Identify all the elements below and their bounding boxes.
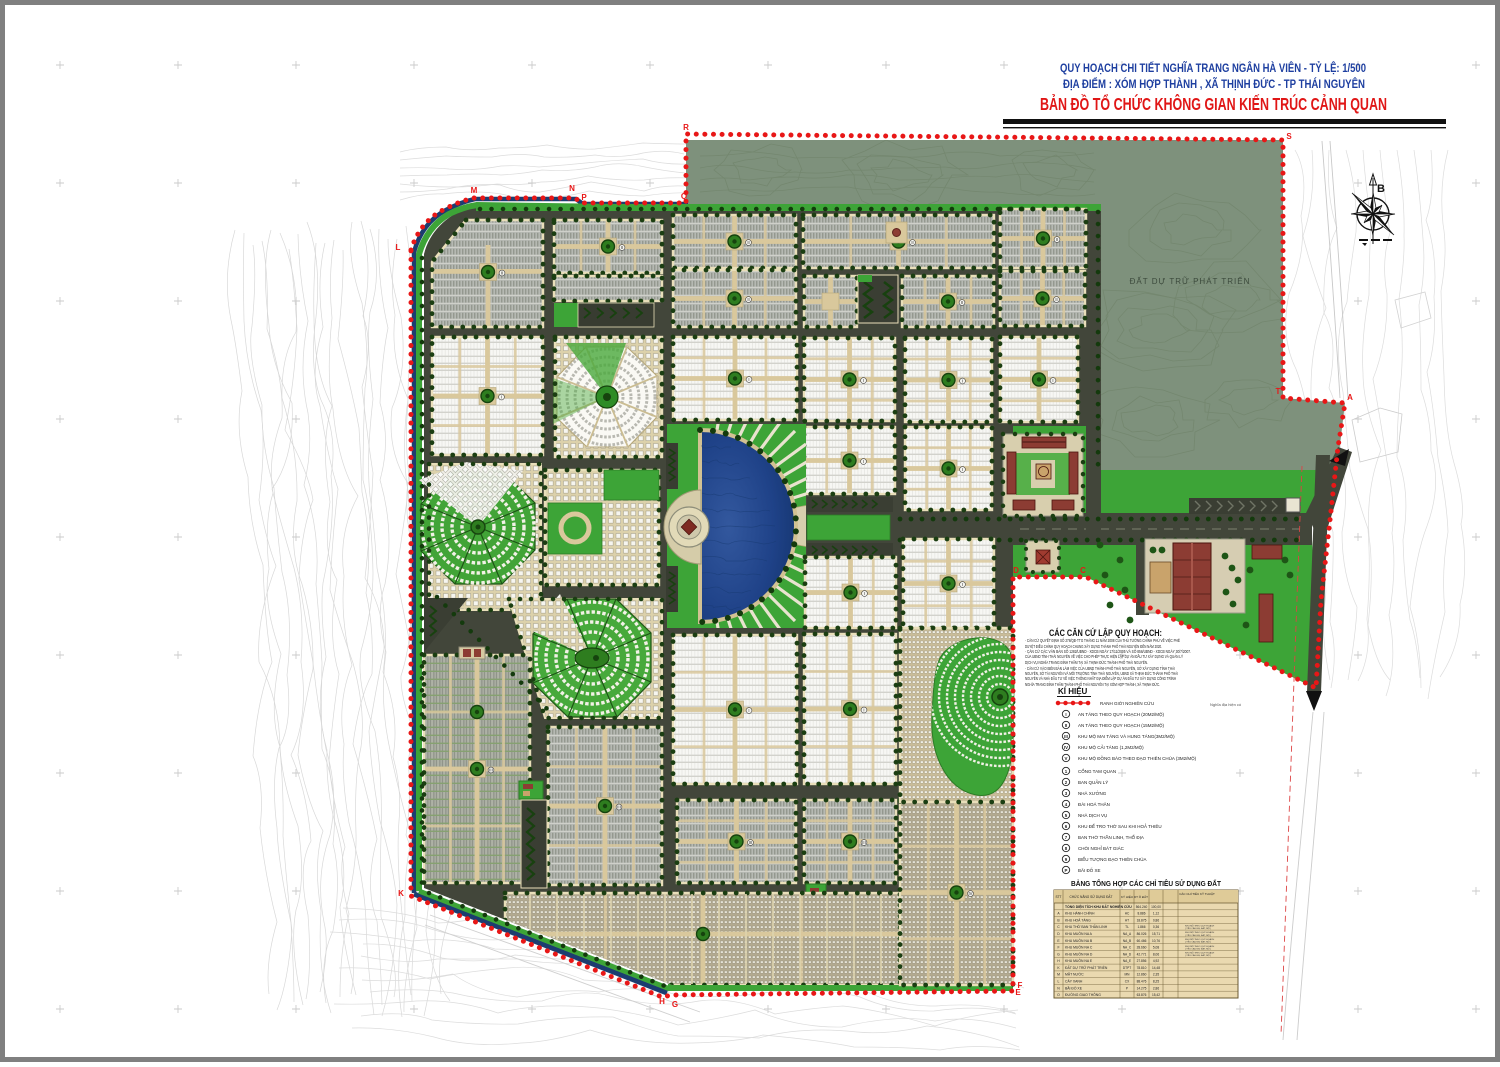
svg-text:CỦA UBND TỈNH THÁI NGUYÊN VỀ V: CỦA UBND TỈNH THÁI NGUYÊN VỀ VIỆC CHO PH… bbox=[1025, 654, 1183, 659]
svg-text:O: O bbox=[1057, 993, 1060, 997]
svg-text:NA_D: NA_D bbox=[1123, 952, 1132, 956]
svg-text:5,08: 5,08 bbox=[1153, 946, 1159, 950]
svg-text:MẶT NƯỚC: MẶT NƯỚC bbox=[1065, 972, 1084, 977]
svg-text:I: I bbox=[863, 459, 864, 464]
svg-text:( YÊU CẦU ĐB, ĐẤT, MỘ ): ( YÊU CẦU ĐB, ĐẤT, MỘ ) bbox=[1185, 947, 1211, 950]
svg-text:KHU MUÔN NA D: KHU MUÔN NA D bbox=[1065, 951, 1093, 956]
svg-text:KHU ĐỂ TRO THỜ SAU KHI HOẢ THI: KHU ĐỂ TRO THỜ SAU KHI HOẢ THIÊU bbox=[1078, 822, 1162, 829]
svg-text:MN: MN bbox=[1125, 973, 1131, 977]
svg-text:0,86: 0,86 bbox=[1153, 919, 1159, 923]
svg-text:I: I bbox=[1065, 712, 1066, 717]
svg-text:( YÊU CẦU ĐB, ĐẤT, MỘ ): ( YÊU CẦU ĐB, ĐẤT, MỘ ) bbox=[1185, 954, 1211, 957]
svg-text:- CĂN CỨ QUYẾT ĐỊNH SỐ 278/QĐ-: - CĂN CỨ QUYẾT ĐỊNH SỐ 278/QĐ-TTG THÁNG … bbox=[1025, 638, 1180, 643]
svg-text:2,86: 2,86 bbox=[1153, 986, 1159, 990]
svg-text:I: I bbox=[1052, 378, 1053, 383]
svg-text:CÁC CHỈ TIÊU KỸ THUẬT: CÁC CHỈ TIÊU KỸ THUẬT bbox=[1179, 891, 1215, 896]
svg-text:KÍ HIỆU: KÍ HIỆU bbox=[1058, 687, 1088, 696]
svg-text:( YÊU CẦU ĐB, ĐẤT, MỘ ): ( YÊU CẦU ĐB, ĐẤT, MỘ ) bbox=[1185, 941, 1211, 944]
svg-text:88.476: 88.476 bbox=[1137, 980, 1147, 984]
svg-text:60.466: 60.466 bbox=[1137, 939, 1147, 943]
svg-text:P: P bbox=[1126, 986, 1128, 990]
svg-text:B: B bbox=[1377, 183, 1385, 195]
svg-text:BAN THỜ THẦN LINH, THỔ ĐỊA: BAN THỜ THẦN LINH, THỔ ĐỊA bbox=[1078, 834, 1144, 840]
svg-text:NA_C: NA_C bbox=[1123, 946, 1132, 950]
svg-text:DT Ô ĐẤT: DT Ô ĐẤT bbox=[1134, 894, 1148, 899]
svg-text:II: II bbox=[501, 271, 503, 276]
svg-text:NGHĨA TRANG ĐỈNH THẮM THÀNH PH: NGHĨA TRANG ĐỈNH THẮM THÀNH PHỐ THÁI NGU… bbox=[1025, 682, 1160, 687]
svg-text:Q: Q bbox=[681, 192, 687, 201]
svg-text:II: II bbox=[961, 300, 963, 305]
svg-text:42.771: 42.771 bbox=[1137, 952, 1147, 956]
svg-text:L: L bbox=[396, 243, 401, 252]
svg-text:F: F bbox=[1057, 946, 1059, 950]
svg-text:0,36: 0,36 bbox=[1153, 925, 1159, 929]
svg-text:NA_B: NA_B bbox=[1123, 939, 1131, 943]
svg-text:KHU MỘ THEO QUY HOẠCH: KHU MỘ THEO QUY HOẠCH bbox=[1185, 931, 1215, 934]
svg-text:KHU MUÔN NA A: KHU MUÔN NA A bbox=[1065, 931, 1093, 936]
svg-text:G: G bbox=[1057, 952, 1060, 956]
svg-text:A: A bbox=[1347, 393, 1353, 402]
svg-text:DỊCH VỤ NGHĨA TRANG ĐỈNH THẮM: DỊCH VỤ NGHĨA TRANG ĐỈNH THẮM TẠI XÃ THỊ… bbox=[1025, 660, 1148, 665]
svg-text:C: C bbox=[1080, 566, 1086, 575]
svg-text:III: III bbox=[1064, 734, 1068, 739]
svg-text:I: I bbox=[962, 379, 963, 384]
svg-text:10,76: 10,76 bbox=[1152, 939, 1160, 943]
svg-text:KHU THỜ BAN THẦN LINH: KHU THỜ BAN THẦN LINH bbox=[1065, 924, 1108, 929]
svg-text:CỔNG TAM QUAN: CỔNG TAM QUAN bbox=[1078, 768, 1116, 774]
svg-text:( YÊU CẦU ĐB, ĐẤT, MỘ ): ( YÊU CẦU ĐB, ĐẤT, MỘ ) bbox=[1185, 927, 1211, 930]
svg-text:HT: HT bbox=[1125, 919, 1129, 923]
svg-text:M: M bbox=[471, 186, 478, 195]
svg-text:I: I bbox=[501, 395, 502, 400]
svg-text:KHU HÀNH CHÍNH: KHU HÀNH CHÍNH bbox=[1065, 912, 1095, 916]
svg-text:CÂY XANH: CÂY XANH bbox=[1065, 980, 1083, 984]
svg-text:ĐỊA ĐIỂM : XÓM HỢP THÀNH , XÃ: ĐỊA ĐIỂM : XÓM HỢP THÀNH , XÃ THỊNH ĐỨC … bbox=[1063, 78, 1365, 91]
svg-text:1.866: 1.866 bbox=[1138, 925, 1146, 929]
svg-text:D: D bbox=[1013, 566, 1019, 575]
svg-text:M: M bbox=[1057, 973, 1060, 977]
svg-text:N: N bbox=[569, 184, 575, 193]
svg-text:KHU MỘ CẢI TÁNG (1,2M2/MỘ): KHU MỘ CẢI TÁNG (1,2M2/MỘ) bbox=[1078, 744, 1144, 750]
svg-text:QUY HOẠCH CHI TIẾT NGHĨA TRANG: QUY HOẠCH CHI TIẾT NGHĨA TRANG NGÂN HÀ V… bbox=[1060, 62, 1366, 75]
svg-text:18.875: 18.875 bbox=[1137, 919, 1147, 923]
svg-text:( YÊU CẦU ĐB, ĐẤT, MỘ ): ( YÊU CẦU ĐB, ĐẤT, MỘ ) bbox=[1185, 934, 1211, 937]
svg-text:HC: HC bbox=[1125, 912, 1130, 916]
svg-text:NHÀ DỊCH VỤ: NHÀ DỊCH VỤ bbox=[1078, 812, 1107, 818]
svg-text:AN TÁNG THEO QUY HOẠCH (20M2/M: AN TÁNG THEO QUY HOẠCH (20M2/MỘ) bbox=[1078, 711, 1165, 717]
svg-text:KHU MỘ MAI TÁNG VÀ HUNG TÁNG(3: KHU MỘ MAI TÁNG VÀ HUNG TÁNG(3M2/MỘ) bbox=[1078, 733, 1175, 739]
svg-text:BAN QUẢN LÝ: BAN QUẢN LÝ bbox=[1078, 779, 1108, 785]
svg-text:4,92: 4,92 bbox=[1153, 959, 1159, 963]
svg-text:564.240: 564.240 bbox=[1136, 905, 1148, 909]
svg-text:14,48: 14,48 bbox=[1152, 966, 1160, 970]
svg-text:NA_A: NA_A bbox=[1123, 932, 1132, 936]
svg-text:BIỂU TƯỢNG ĐẠO THIÊN CHÚA: BIỂU TƯỢNG ĐẠO THIÊN CHÚA bbox=[1078, 855, 1147, 862]
svg-text:I: I bbox=[748, 377, 749, 382]
svg-text:III: III bbox=[617, 805, 621, 810]
svg-text:IV: IV bbox=[1064, 745, 1068, 750]
svg-text:28.660: 28.660 bbox=[1137, 946, 1147, 950]
svg-text:1,12: 1,12 bbox=[1153, 912, 1159, 916]
svg-text:AN TÁNG THEO QUY HOẠCH (15M2/M: AN TÁNG THEO QUY HOẠCH (15M2/MỘ) bbox=[1078, 722, 1165, 728]
svg-text:63.876: 63.876 bbox=[1137, 993, 1147, 997]
svg-text:BÃI ĐỖ XE: BÃI ĐỖ XE bbox=[1065, 985, 1083, 990]
svg-text:I: I bbox=[864, 591, 865, 596]
svg-text:14.275: 14.275 bbox=[1137, 986, 1147, 990]
svg-text:KHU HOẢ TÁNG: KHU HOẢ TÁNG bbox=[1065, 918, 1091, 923]
svg-text:2,35: 2,35 bbox=[1153, 973, 1159, 977]
svg-text:T: T bbox=[1276, 387, 1281, 396]
svg-text:ĐÀI HOÁ THÂN: ĐÀI HOÁ THÂN bbox=[1078, 801, 1110, 807]
svg-text:II: II bbox=[621, 245, 623, 250]
svg-text:86.026: 86.026 bbox=[1137, 932, 1147, 936]
svg-text:RANH GIỚI NGHIÊN CỨU: RANH GIỚI NGHIÊN CỨU bbox=[1100, 699, 1154, 706]
svg-text:P: P bbox=[1065, 868, 1068, 873]
svg-text:IV: IV bbox=[969, 891, 973, 896]
svg-text:KHU MUÔN NA B: KHU MUÔN NA B bbox=[1065, 938, 1093, 943]
svg-text:KHU MỘ THEO QUY HOẠCH: KHU MỘ THEO QUY HOẠCH bbox=[1185, 938, 1215, 941]
svg-text:NGUYÊN VÀ NHÀ ĐẦU TƯ VỀ VIỆC T: NGUYÊN VÀ NHÀ ĐẦU TƯ VỀ VIỆC THỐNG NHẤT … bbox=[1025, 676, 1176, 681]
svg-text:I: I bbox=[863, 378, 864, 383]
svg-text:R: R bbox=[683, 123, 689, 132]
svg-text:DTPT: DTPT bbox=[1123, 966, 1131, 970]
svg-text:KHU MUÔN NA C: KHU MUÔN NA C bbox=[1065, 945, 1093, 950]
svg-text:I: I bbox=[748, 708, 749, 713]
svg-text:I: I bbox=[863, 708, 864, 713]
svg-text:8.886: 8.886 bbox=[1138, 912, 1146, 916]
svg-text:III: III bbox=[749, 840, 753, 845]
svg-text:S: S bbox=[1286, 132, 1292, 141]
svg-text:KHU MỘ THEO QUY HOẠCH: KHU MỘ THEO QUY HOẠCH bbox=[1185, 945, 1215, 948]
svg-text:NHÀ XƯỞNG: NHÀ XƯỞNG bbox=[1078, 790, 1107, 796]
svg-text:II: II bbox=[747, 297, 749, 302]
svg-text:15,42: 15,42 bbox=[1152, 993, 1160, 997]
svg-text:KHU MỘ THEO QUY HOẠCH: KHU MỘ THEO QUY HOẠCH bbox=[1185, 952, 1215, 955]
svg-text:L: L bbox=[1058, 980, 1060, 984]
svg-text:II: II bbox=[1055, 297, 1057, 302]
svg-text:G: G bbox=[672, 1000, 678, 1009]
svg-text:ĐẤT DỰ TRỮ PHÁT TRIỂN: ĐẤT DỰ TRỮ PHÁT TRIỂN bbox=[1130, 276, 1251, 286]
svg-text:TL: TL bbox=[1125, 925, 1129, 929]
svg-text:78.810: 78.810 bbox=[1137, 966, 1147, 970]
svg-text:III: III bbox=[489, 768, 493, 773]
svg-text:CHÒI NGHỈ BÁT GIÁC: CHÒI NGHỈ BÁT GIÁC bbox=[1078, 845, 1125, 851]
svg-text:100,00: 100,00 bbox=[1151, 905, 1161, 909]
svg-text:STT: STT bbox=[1055, 895, 1061, 899]
svg-text:15,71: 15,71 bbox=[1152, 932, 1160, 936]
svg-text:ĐƯỜNG GIAO THÔNG: ĐƯỜNG GIAO THÔNG bbox=[1065, 992, 1101, 997]
svg-text:II: II bbox=[1056, 237, 1058, 242]
svg-text:KHU MỘ THEO QUY HOẠCH: KHU MỘ THEO QUY HOẠCH bbox=[1185, 924, 1215, 927]
svg-text:KHU MUÔN NA E: KHU MUÔN NA E bbox=[1065, 958, 1093, 963]
svg-text:I: I bbox=[962, 467, 963, 472]
svg-text:KÝ HIỆU: KÝ HIỆU bbox=[1121, 894, 1133, 899]
svg-text:KHU MỘ ĐỒNG BÀO THEO ĐẠO THIÊN: KHU MỘ ĐỒNG BÀO THEO ĐẠO THIÊN CHÚA (3M2… bbox=[1078, 754, 1197, 761]
svg-text:8,06: 8,06 bbox=[1153, 952, 1159, 956]
svg-text:ĐẤT DỰ TRỮ PHÁT TRIỂN: ĐẤT DỰ TRỮ PHÁT TRIỂN bbox=[1065, 965, 1108, 970]
svg-text:V: V bbox=[1065, 756, 1068, 761]
svg-text:II: II bbox=[911, 240, 913, 245]
svg-text:I: I bbox=[962, 582, 963, 587]
svg-text:NA_E: NA_E bbox=[1123, 959, 1131, 963]
svg-text:II: II bbox=[747, 240, 749, 245]
svg-text:BÃI ĐỖ XE: BÃI ĐỖ XE bbox=[1078, 867, 1101, 873]
svg-text:III: III bbox=[862, 840, 866, 845]
svg-text:12.860: 12.860 bbox=[1137, 973, 1147, 977]
svg-text:P: P bbox=[581, 193, 587, 202]
svg-text:CHỨC NĂNG SỬ DỤNG ĐẤT: CHỨC NĂNG SỬ DỤNG ĐẤT bbox=[1070, 894, 1113, 899]
svg-text:27.856: 27.856 bbox=[1137, 959, 1147, 963]
svg-text:H: H bbox=[659, 997, 665, 1006]
svg-text:BẢN ĐỒ TỔ CHỨC KHÔNG GIAN KIẾN: BẢN ĐỒ TỔ CHỨC KHÔNG GIAN KIẾN TRÚC CẢNH… bbox=[1040, 93, 1387, 114]
svg-text:TỔNG DIỆN TÍCH KHU ĐẤT NGHIÊN: TỔNG DIỆN TÍCH KHU ĐẤT NGHIÊN CỨU bbox=[1065, 904, 1132, 909]
svg-text:F: F bbox=[1018, 981, 1023, 990]
svg-text:8,25: 8,25 bbox=[1153, 980, 1159, 984]
svg-text:II: II bbox=[1065, 723, 1067, 728]
svg-text:Nghĩa địa hiện có: Nghĩa địa hiện có bbox=[1210, 702, 1242, 707]
svg-text:K: K bbox=[398, 889, 404, 898]
